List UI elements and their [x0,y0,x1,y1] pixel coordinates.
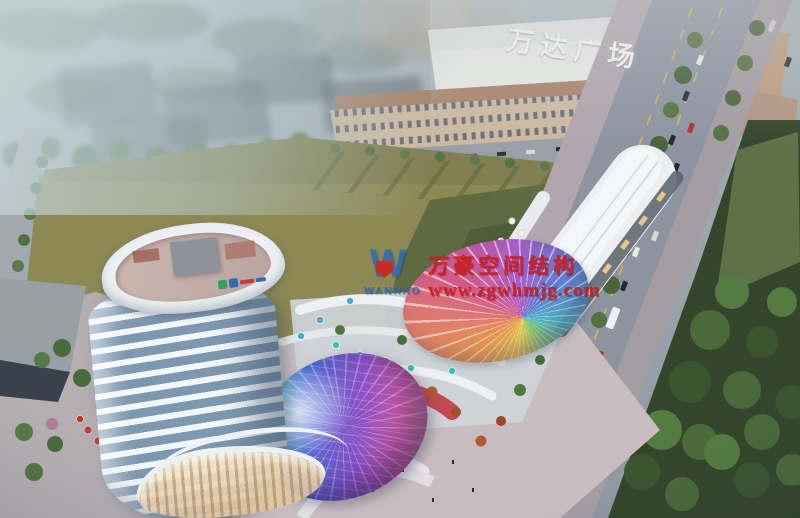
logo-red-text-bar [240,278,254,284]
logo-blue-square [229,278,239,288]
watermark-text: 万豪空间结构 www.zgwhmjg.com [428,249,600,309]
watermark-logo-text: WANHAO [364,286,422,297]
roof-patch [224,240,256,260]
tower-roof-deck [111,225,274,310]
watermark: W WANHAO 万豪空间结构 www.zgwhmjg.com [364,249,610,309]
architectural-rendering: 万达广场 W WANHAO 万豪空间结构 www.zgwhmjg.com [0,0,800,518]
watermark-website: www.zgwhmjg.com [428,280,600,302]
watermark-logo: W WANHAO [364,249,428,309]
roof-patch [133,248,160,263]
logo-blue-text-bar [256,276,266,281]
logo-green-square [218,279,228,289]
flowering-shrub [46,418,58,430]
watermark-company-name: 万豪空间结构 [428,250,600,280]
tower-penthouse [170,237,220,276]
